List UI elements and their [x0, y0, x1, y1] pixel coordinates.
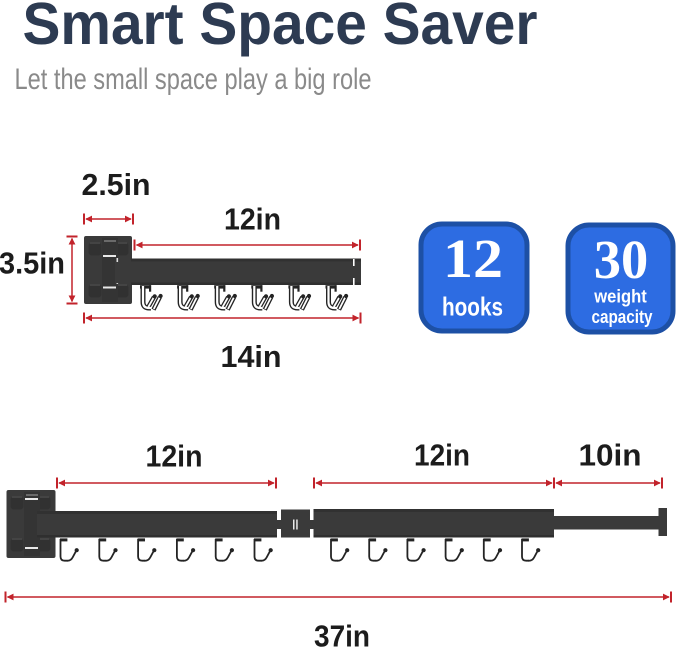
svg-text:30: 30 — [594, 229, 649, 290]
svg-text:12in: 12in — [414, 438, 470, 473]
svg-text:capacity: capacity — [592, 306, 654, 327]
svg-text:Smart Space Saver: Smart Space Saver — [23, 0, 538, 57]
svg-text:37in: 37in — [314, 619, 370, 648]
svg-text:12: 12 — [443, 228, 503, 289]
svg-text:14in: 14in — [221, 339, 282, 374]
svg-text:weight: weight — [593, 286, 646, 307]
svg-text:10in: 10in — [579, 438, 642, 473]
svg-text:12in: 12in — [146, 439, 203, 474]
svg-text:3.5in: 3.5in — [0, 246, 65, 281]
svg-text:2.5in: 2.5in — [82, 167, 151, 202]
svg-text:hooks: hooks — [442, 292, 503, 322]
svg-text:Let the small space play a big: Let the small space play a big role — [15, 63, 372, 96]
svg-text:12in: 12in — [224, 202, 281, 237]
